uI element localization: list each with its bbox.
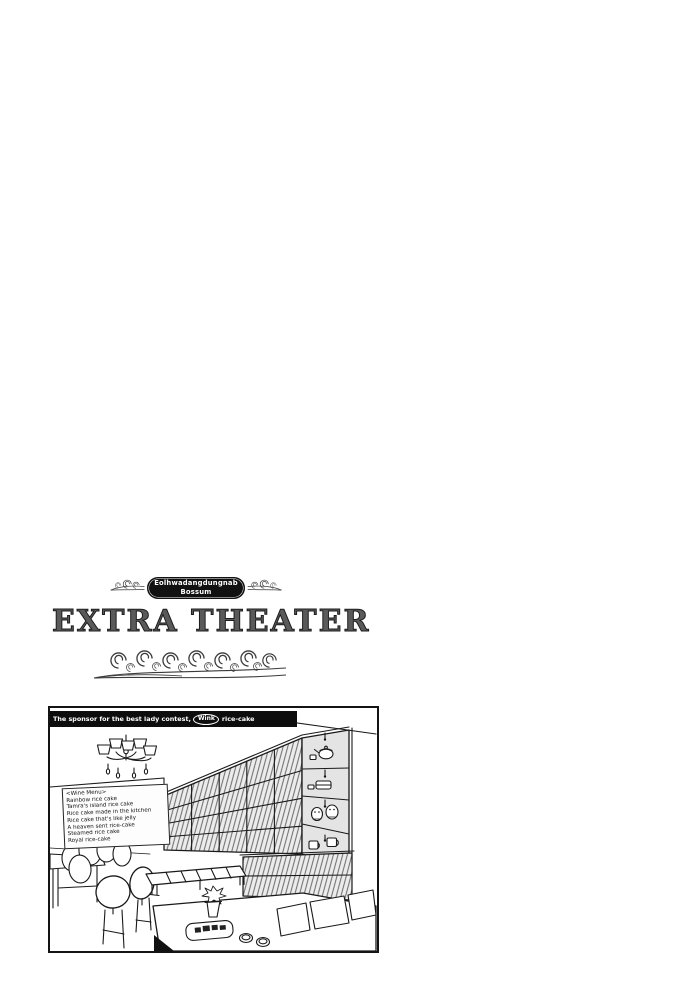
lower-shelf: [240, 851, 354, 900]
series-badge-line1: Eolhwadangdungnab: [154, 579, 238, 588]
chandelier-icon: [98, 735, 157, 778]
sponsor-name-badge: Wink: [193, 714, 219, 725]
cloud-scroll-ornament-left: [110, 576, 145, 600]
page-title: EXTRA THEATER: [52, 604, 332, 639]
manga-panel: The sponsor for the best lady contest, W…: [48, 706, 379, 953]
series-badge-row: Eolhwadangdungnab Bossum: [110, 573, 282, 603]
sponsor-banner: The sponsor for the best lady contest, W…: [50, 711, 297, 727]
series-badge-line2: Bossum: [154, 588, 238, 597]
sponsor-banner-prefix: The sponsor for the best lady contest,: [53, 716, 191, 722]
oval-back-chairs: [62, 835, 156, 948]
cloud-scroll-flourish: [92, 649, 288, 685]
manga-page: { "page": {"background": "#ffffff"}, "he…: [0, 0, 700, 1007]
sponsor-banner-suffix: rice-cake: [222, 716, 255, 722]
bench: [146, 866, 246, 896]
rice-cake-tray-icon: [185, 920, 233, 941]
cloud-scroll-ornament-right: [247, 576, 282, 600]
series-badge: Eolhwadangdungnab Bossum: [147, 577, 245, 600]
menu-board: <Wine Menu> Rainbow rice cake Tamra's is…: [62, 784, 171, 849]
